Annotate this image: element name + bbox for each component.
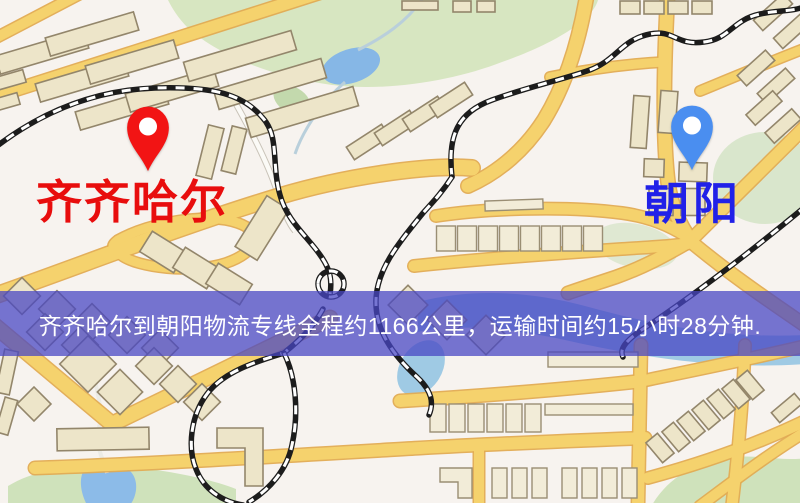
map-canvas: 齐齐哈尔 朝阳 齐齐哈尔到朝阳物流专线全程约1166公里，运输时间约15小时28… (0, 0, 800, 503)
origin-pin-icon (119, 99, 177, 173)
route-banner: 齐齐哈尔到朝阳物流专线全程约1166公里，运输时间约15小时28分钟. (0, 291, 800, 356)
destination-marker[interactable] (663, 98, 721, 172)
map-background (0, 0, 800, 503)
origin-label: 齐齐哈尔 (36, 179, 228, 225)
destination-pin-icon (663, 98, 721, 172)
destination-label: 朝阳 (644, 181, 742, 226)
route-banner-text: 齐齐哈尔到朝阳物流专线全程约1166公里，运输时间约15小时28分钟. (39, 307, 762, 341)
origin-marker[interactable] (119, 99, 177, 173)
